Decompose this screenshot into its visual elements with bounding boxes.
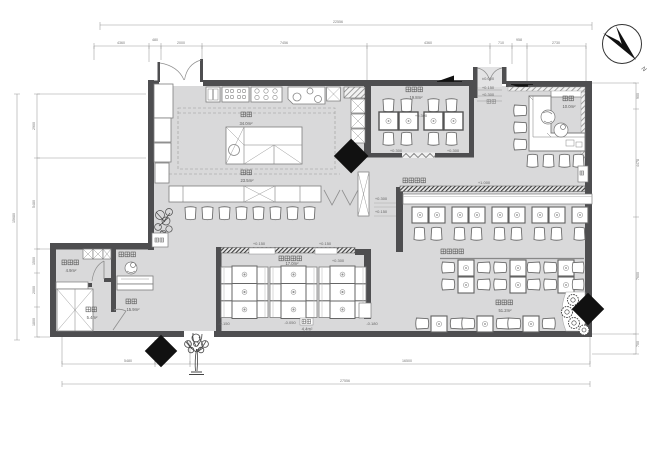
svg-text:7600: 7600	[636, 272, 640, 280]
svg-text:+0.300: +0.300	[482, 92, 495, 97]
svg-text:+0.150: +0.150	[375, 209, 388, 214]
svg-text:5480: 5480	[124, 359, 132, 363]
svg-text:4360: 4360	[117, 41, 125, 45]
svg-text:23.5m²: 23.5m²	[240, 178, 254, 183]
svg-text:+0.300: +0.300	[390, 148, 403, 153]
svg-text:+0.150: +0.150	[253, 241, 266, 246]
svg-text:958: 958	[516, 38, 522, 42]
svg-text:4.9m²: 4.9m²	[66, 268, 77, 273]
svg-text:700: 700	[636, 341, 640, 347]
svg-text:5.4m²: 5.4m²	[87, 315, 98, 320]
svg-text:2000: 2000	[177, 41, 185, 45]
svg-text:480: 480	[152, 38, 158, 42]
svg-text:900: 900	[636, 93, 640, 99]
svg-text:+0.150: +0.150	[482, 85, 495, 90]
svg-text:+0.300: +0.300	[415, 113, 428, 118]
svg-text:-0.180: -0.180	[366, 321, 378, 326]
svg-text:15680: 15680	[12, 213, 16, 223]
svg-text:1500: 1500	[32, 257, 36, 265]
svg-text:2900: 2900	[32, 122, 36, 130]
svg-text:2000: 2000	[32, 286, 36, 294]
svg-text:4.4m²: 4.4m²	[302, 327, 313, 332]
svg-text:34.0m²: 34.0m²	[239, 121, 253, 126]
svg-text:27556: 27556	[340, 379, 350, 383]
svg-text:+0.300: +0.300	[447, 148, 460, 153]
svg-text:-0.050: -0.050	[284, 320, 296, 325]
svg-text:±0.000: ±0.000	[482, 76, 495, 81]
svg-text:7456: 7456	[280, 41, 288, 45]
svg-text:+1.000: +1.000	[478, 180, 491, 185]
svg-text:-0.150: -0.150	[218, 321, 230, 326]
svg-text:+0.150: +0.150	[319, 241, 332, 246]
svg-text:22556: 22556	[333, 20, 343, 24]
svg-text:17.0m²: 17.0m²	[285, 261, 299, 266]
svg-text:710: 710	[498, 41, 504, 45]
svg-text:4360: 4360	[424, 41, 432, 45]
svg-text:+0.300: +0.300	[332, 258, 345, 263]
svg-text:+0.300: +0.300	[375, 196, 388, 201]
svg-text:2730: 2730	[552, 41, 560, 45]
svg-text:10.0m²: 10.0m²	[562, 104, 576, 109]
svg-text:51.2m²: 51.2m²	[498, 308, 512, 313]
svg-text:5480: 5480	[32, 200, 36, 208]
svg-text:16500: 16500	[402, 359, 412, 363]
svg-text:4478: 4478	[636, 159, 640, 167]
svg-text:15.9m²: 15.9m²	[126, 307, 140, 312]
svg-text:1800: 1800	[32, 318, 36, 326]
